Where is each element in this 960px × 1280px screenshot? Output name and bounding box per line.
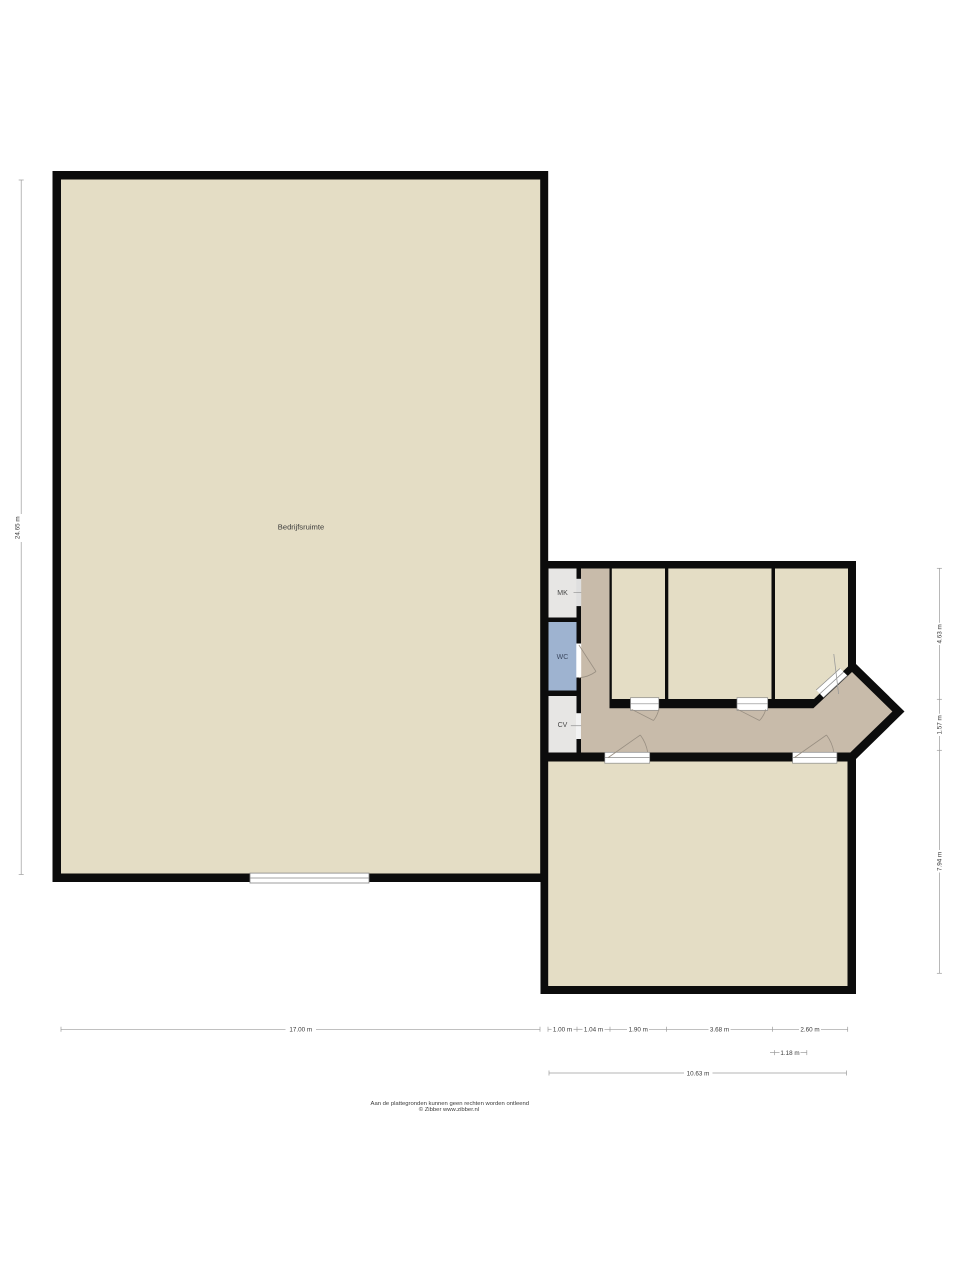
svg-text:3.68 m: 3.68 m [710,1027,729,1034]
svg-text:Bedrijfsruimte: Bedrijfsruimte [278,522,324,531]
svg-text:1.00 m: 1.00 m [553,1027,572,1034]
svg-text:17.00 m: 17.00 m [289,1027,312,1034]
svg-text:7.94 m: 7.94 m [937,852,944,871]
svg-text:WC: WC [557,654,569,661]
svg-text:1.04 m: 1.04 m [584,1027,603,1034]
svg-text:24.65 m: 24.65 m [15,516,22,539]
svg-text:1.57 m: 1.57 m [937,715,944,734]
svg-text:MK: MK [557,590,568,597]
svg-text:CV: CV [558,722,568,729]
svg-text:10.63 m: 10.63 m [687,1070,710,1077]
svg-text:1.90 m: 1.90 m [629,1027,648,1034]
svg-text:1.18 m: 1.18 m [780,1050,799,1057]
svg-text:© Zibber www.zibber.nl: © Zibber www.zibber.nl [419,1106,479,1113]
svg-text:2.60 m: 2.60 m [800,1027,819,1034]
svg-text:4.63 m: 4.63 m [937,624,944,643]
